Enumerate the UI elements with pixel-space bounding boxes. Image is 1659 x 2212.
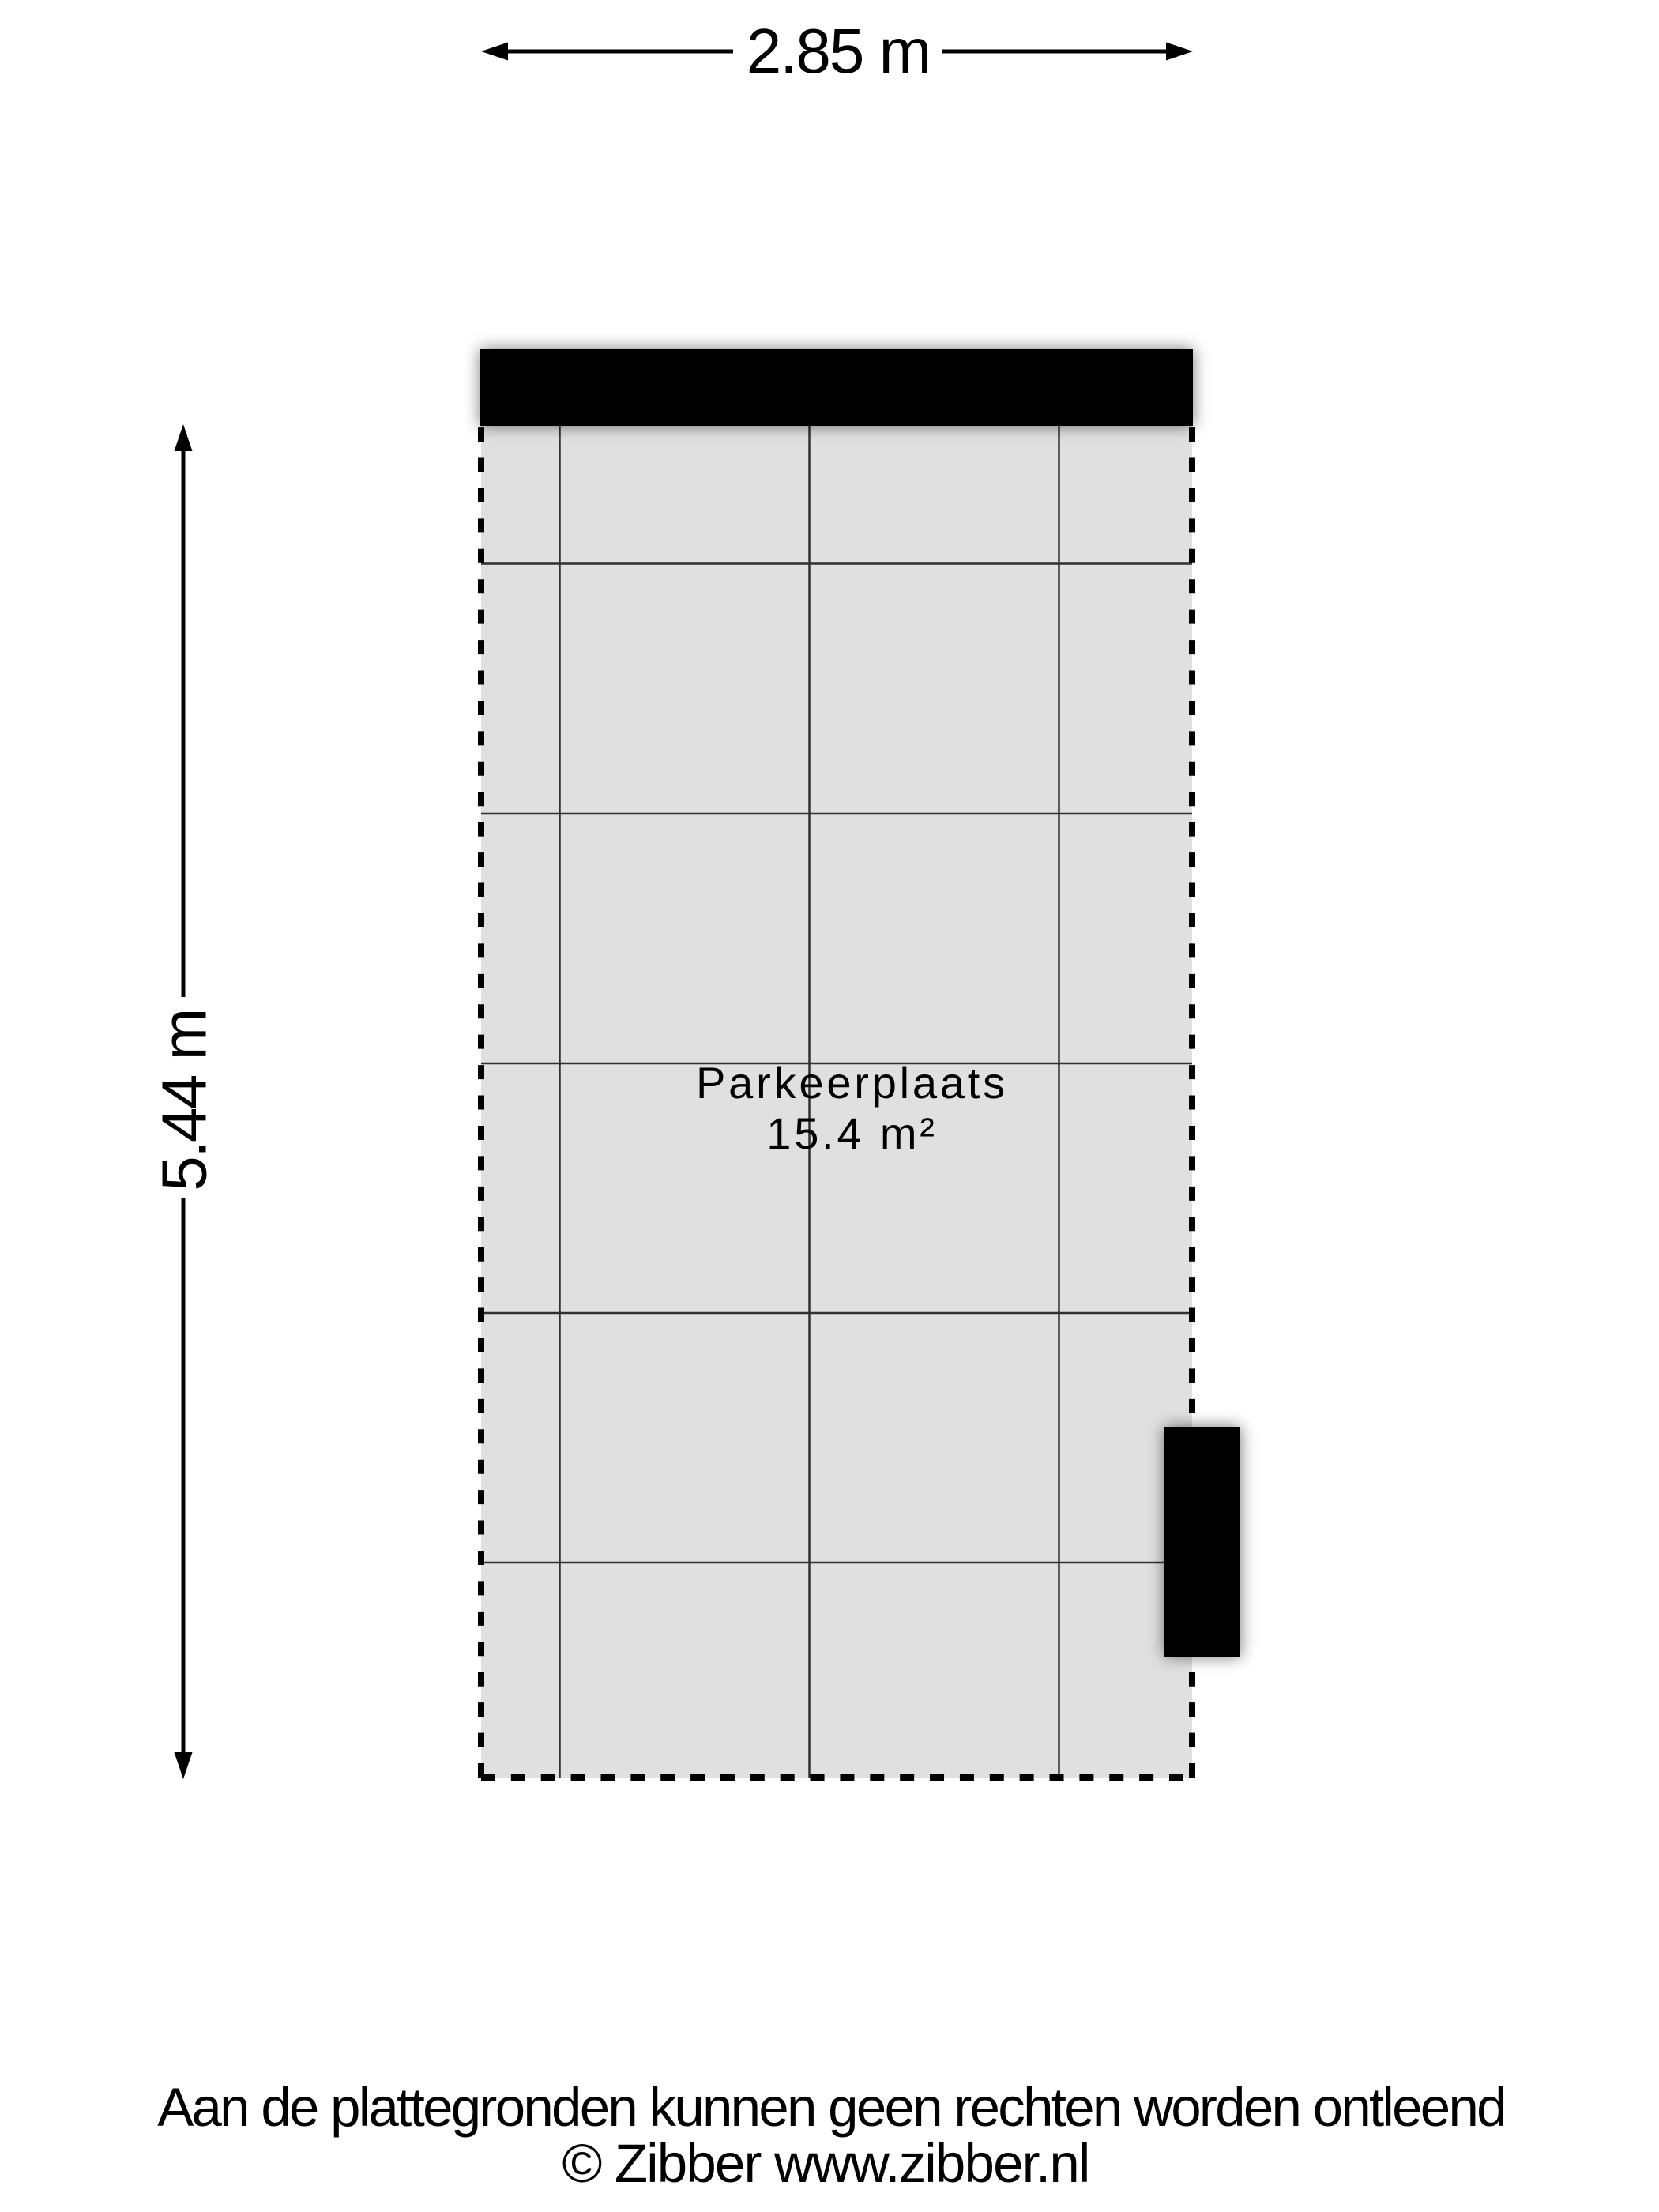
svg-text:15.4 m²: 15.4 m²: [766, 1108, 937, 1158]
svg-text:2.85 m: 2.85 m: [747, 16, 931, 86]
svg-text:Aan de plattegronden kunnen ge: Aan de plattegronden kunnen geen rechten…: [157, 2077, 1505, 2138]
svg-text:Parkeerplaats: Parkeerplaats: [696, 1058, 1008, 1108]
svg-text:© Zibber www.zibber.nl: © Zibber www.zibber.nl: [562, 2133, 1089, 2194]
svg-text:5.44 m: 5.44 m: [149, 1010, 220, 1191]
